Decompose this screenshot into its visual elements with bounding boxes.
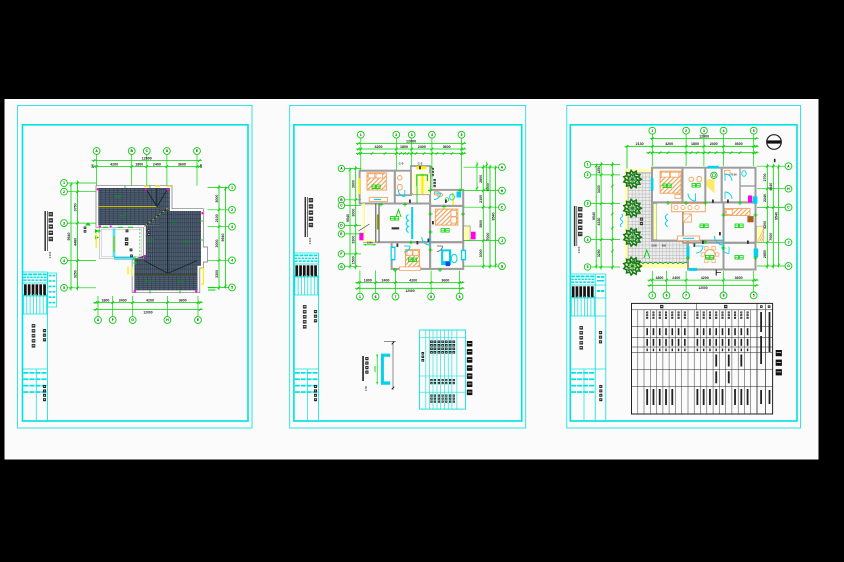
svg-text:2800: 2800 bbox=[479, 175, 483, 183]
svg-text:1800: 1800 bbox=[691, 142, 699, 146]
svg-text:1800: 1800 bbox=[400, 145, 408, 149]
svg-text:2: 2 bbox=[685, 129, 687, 133]
svg-text:G: G bbox=[340, 265, 343, 269]
svg-text:3000: 3000 bbox=[215, 195, 219, 203]
svg-text:F: F bbox=[112, 318, 114, 322]
svg-text:2100: 2100 bbox=[215, 214, 219, 222]
svg-text:2400: 2400 bbox=[153, 162, 161, 166]
svg-text:7000: 7000 bbox=[486, 233, 490, 241]
svg-text:12000: 12000 bbox=[699, 134, 709, 138]
svg-text:1800: 1800 bbox=[101, 298, 109, 302]
svg-text:8: 8 bbox=[723, 294, 725, 298]
svg-text:3: 3 bbox=[231, 225, 233, 229]
svg-text:1800: 1800 bbox=[655, 276, 663, 280]
svg-text:4480: 4480 bbox=[73, 238, 77, 246]
svg-text:3300: 3300 bbox=[352, 236, 356, 244]
svg-text:2850: 2850 bbox=[763, 250, 767, 258]
svg-text:1500: 1500 bbox=[651, 244, 657, 247]
svg-text:2400: 2400 bbox=[373, 366, 377, 372]
svg-text:2400: 2400 bbox=[710, 142, 718, 146]
svg-text:J: J bbox=[501, 239, 503, 243]
svg-text:240: 240 bbox=[92, 163, 95, 168]
svg-text:2400: 2400 bbox=[119, 298, 127, 302]
svg-text:G: G bbox=[787, 264, 790, 268]
svg-text:4200: 4200 bbox=[701, 276, 709, 280]
svg-text:3600: 3600 bbox=[735, 142, 743, 146]
svg-text:12000: 12000 bbox=[406, 139, 416, 143]
svg-text:1:100: 1:100 bbox=[48, 251, 52, 258]
svg-text:2700: 2700 bbox=[763, 173, 767, 181]
svg-text:F: F bbox=[340, 252, 342, 256]
svg-text:3000: 3000 bbox=[479, 249, 483, 257]
svg-text:3600: 3600 bbox=[441, 279, 449, 283]
svg-text:2: 2 bbox=[231, 208, 233, 212]
svg-text:5: 5 bbox=[587, 265, 589, 269]
svg-text:8: 8 bbox=[430, 295, 432, 299]
svg-text:900: 900 bbox=[662, 244, 667, 247]
svg-text:4330: 4330 bbox=[597, 218, 601, 226]
svg-text:5: 5 bbox=[461, 133, 463, 137]
svg-text:4200: 4200 bbox=[146, 298, 154, 302]
svg-text:240: 240 bbox=[200, 163, 203, 168]
svg-text:3750: 3750 bbox=[73, 203, 77, 211]
svg-text:2: 2 bbox=[395, 133, 397, 137]
svg-text:7060: 7060 bbox=[769, 233, 773, 241]
svg-text:1800: 1800 bbox=[364, 279, 372, 283]
svg-text:1250: 1250 bbox=[597, 166, 601, 174]
svg-text:2240: 2240 bbox=[763, 194, 767, 202]
svg-text:4: 4 bbox=[231, 259, 233, 263]
svg-text:4200: 4200 bbox=[665, 142, 673, 146]
svg-text:4200: 4200 bbox=[110, 162, 118, 166]
svg-text:4: 4 bbox=[587, 238, 589, 242]
svg-text:9540: 9540 bbox=[346, 214, 350, 222]
svg-text:1: 1 bbox=[587, 163, 589, 167]
svg-text:3300: 3300 bbox=[215, 270, 219, 278]
svg-text:3: 3 bbox=[411, 133, 413, 137]
svg-text:J: J bbox=[788, 241, 790, 245]
svg-text:G: G bbox=[131, 318, 134, 322]
svg-text:8?0.90: 8?0.90 bbox=[729, 173, 737, 176]
svg-text:C-5: C-5 bbox=[399, 162, 404, 166]
svg-text:1800: 1800 bbox=[135, 162, 143, 166]
svg-text:2100: 2100 bbox=[479, 195, 483, 203]
svg-text:3250: 3250 bbox=[73, 270, 77, 278]
svg-text:9540: 9540 bbox=[67, 233, 71, 241]
svg-text:4: 4 bbox=[63, 259, 65, 263]
svg-text:5: 5 bbox=[231, 286, 233, 290]
svg-text:4200: 4200 bbox=[763, 221, 767, 229]
svg-text:12000: 12000 bbox=[142, 156, 152, 160]
svg-text:1: 1 bbox=[651, 294, 653, 298]
svg-text:7: 7 bbox=[685, 294, 687, 298]
svg-text:3000: 3000 bbox=[352, 209, 356, 217]
svg-text:2: 2 bbox=[63, 190, 65, 194]
svg-text:3600: 3600 bbox=[178, 162, 186, 166]
svg-text:1:100: 1:100 bbox=[577, 246, 581, 253]
svg-text:7: 7 bbox=[395, 295, 397, 299]
svg-text:5: 5 bbox=[459, 295, 461, 299]
svg-text:3900: 3900 bbox=[352, 180, 356, 188]
svg-text:3600: 3600 bbox=[735, 276, 743, 280]
svg-text:5: 5 bbox=[63, 286, 65, 290]
svg-text:1500: 1500 bbox=[367, 241, 373, 245]
svg-text:3900: 3900 bbox=[479, 220, 483, 228]
svg-text:4200: 4200 bbox=[375, 145, 383, 149]
svg-text:12000: 12000 bbox=[698, 286, 707, 290]
svg-text:1: 1 bbox=[63, 181, 65, 185]
svg-text:12000: 12000 bbox=[143, 311, 152, 315]
svg-text:4: 4 bbox=[431, 133, 433, 137]
svg-text:2400: 2400 bbox=[672, 276, 680, 280]
svg-text:1: 1 bbox=[359, 295, 361, 299]
svg-text:9540: 9540 bbox=[491, 213, 495, 221]
svg-text:1: 1 bbox=[651, 129, 653, 133]
svg-text:3000: 3000 bbox=[215, 240, 219, 248]
svg-text:2: 2 bbox=[587, 173, 589, 177]
svg-text:4940: 4940 bbox=[769, 183, 773, 191]
svg-text:G: G bbox=[501, 264, 504, 268]
svg-text:2400: 2400 bbox=[382, 279, 390, 283]
svg-text:6: 6 bbox=[375, 295, 377, 299]
svg-text:3600: 3600 bbox=[443, 145, 451, 149]
svg-text:4: 4 bbox=[723, 129, 725, 133]
svg-text:3430: 3430 bbox=[597, 185, 601, 193]
svg-text:2130: 2130 bbox=[636, 142, 644, 146]
svg-text:3290: 3290 bbox=[597, 249, 601, 257]
svg-text:C-3: C-3 bbox=[418, 161, 423, 165]
svg-text:2400: 2400 bbox=[418, 145, 426, 149]
svg-text:9540: 9540 bbox=[221, 234, 225, 242]
svg-text:3: 3 bbox=[587, 202, 589, 206]
svg-text:1:50: 1:50 bbox=[365, 385, 368, 390]
svg-text:9540: 9540 bbox=[774, 212, 778, 220]
svg-text:1500: 1500 bbox=[352, 256, 356, 264]
svg-text:6: 6 bbox=[666, 294, 668, 298]
svg-text:3600: 3600 bbox=[179, 298, 187, 302]
svg-text:3: 3 bbox=[703, 129, 705, 133]
svg-text:1: 1 bbox=[231, 186, 233, 190]
svg-text:9540: 9540 bbox=[592, 212, 596, 220]
svg-text:1: 1 bbox=[360, 133, 362, 137]
svg-text:4200: 4200 bbox=[409, 279, 417, 283]
svg-text:5: 5 bbox=[753, 129, 755, 133]
svg-text:5: 5 bbox=[753, 294, 755, 298]
svg-text:1:100: 1:100 bbox=[308, 237, 312, 244]
svg-text:12000: 12000 bbox=[405, 289, 414, 293]
svg-text:3: 3 bbox=[63, 221, 65, 225]
